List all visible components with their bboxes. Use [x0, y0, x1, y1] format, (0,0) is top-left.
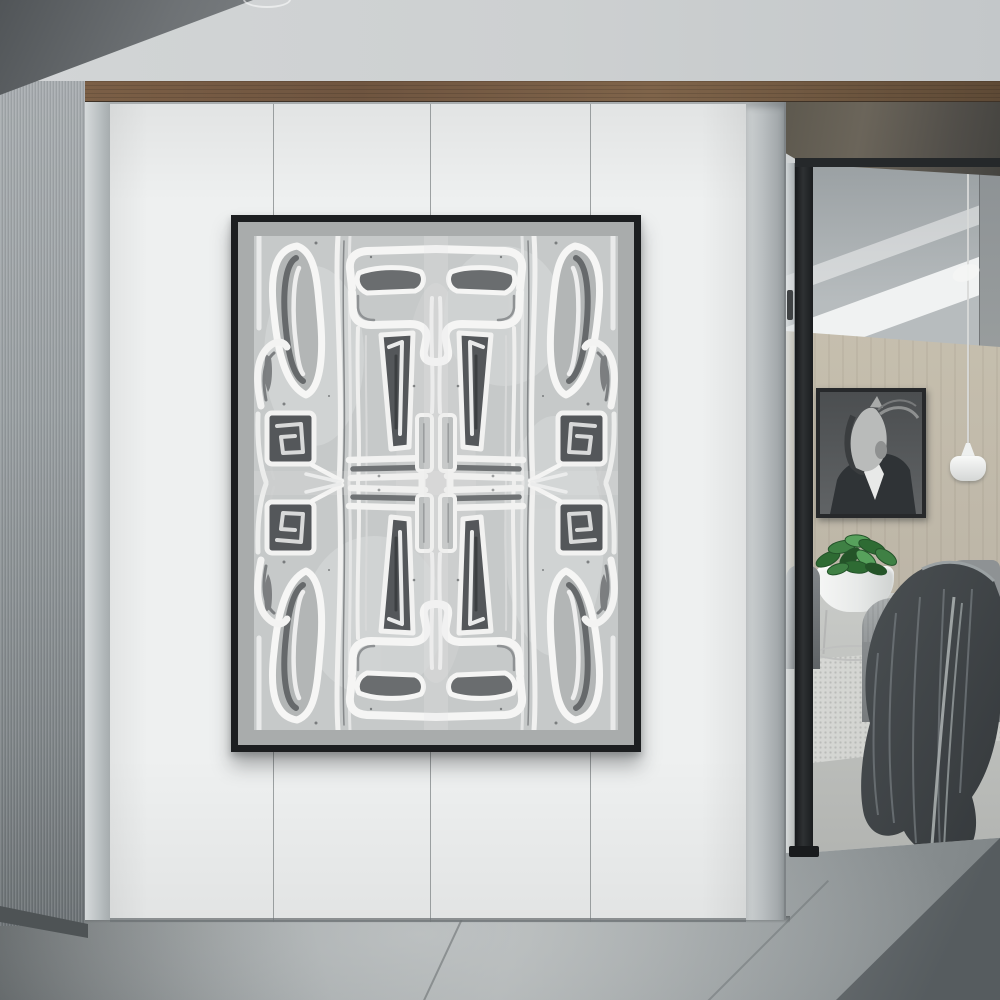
pendant-lamp: [950, 443, 986, 481]
interior-photo: [0, 0, 1000, 1000]
pendant-cord: [967, 171, 969, 455]
glass-partition-frame-top: [795, 158, 1000, 167]
lounge-room: [786, 163, 1000, 860]
door-handle: [787, 290, 793, 320]
lamp-shade: [950, 456, 986, 481]
baseboard-shadow: [110, 918, 746, 922]
metal-wall-edge: [85, 102, 110, 920]
glass-partition-frame-foot: [789, 846, 819, 857]
artwork-canvas: [254, 236, 618, 730]
metal-wall: [0, 58, 85, 926]
framed-artwork: [231, 215, 641, 752]
glass-partition-frame: [795, 158, 813, 852]
floor-seam: [419, 918, 463, 1000]
throw-blanket: [856, 553, 1000, 860]
glass-partition-edge: [786, 163, 795, 853]
wood-trim: [85, 80, 1000, 102]
pilaster: [746, 102, 786, 920]
horse-portrait: [816, 388, 926, 518]
floor-shadow-wedge: [830, 836, 1000, 1000]
